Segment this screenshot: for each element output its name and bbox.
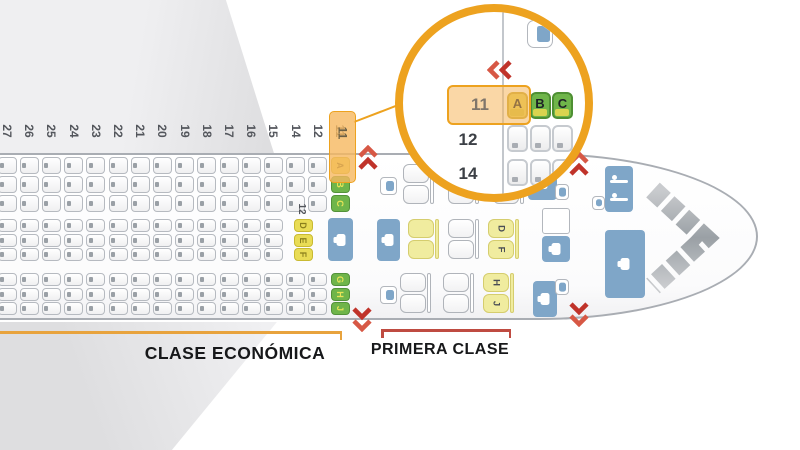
seat-notch xyxy=(178,277,182,282)
economy-seat-24B[interactable] xyxy=(64,176,83,193)
crew-seat-cushion xyxy=(537,26,550,42)
seat-notch xyxy=(557,177,563,182)
economy-seat-26C[interactable] xyxy=(20,195,39,212)
seat-notch xyxy=(44,277,48,282)
crew-seat-cushion xyxy=(559,283,566,292)
economy-seat-15F[interactable] xyxy=(264,248,283,261)
fc-pair-bottom-front-seat2[interactable]: J xyxy=(483,294,509,313)
economy-seat-18F[interactable] xyxy=(197,248,216,261)
economy-seat-17D[interactable] xyxy=(220,219,239,232)
seat-notch xyxy=(0,182,4,187)
economy-seat-22D[interactable] xyxy=(109,219,128,232)
galley-block-1 xyxy=(328,218,353,261)
fc-pair-bottom-2-seat2[interactable] xyxy=(443,294,469,313)
economy-seat-26H[interactable] xyxy=(20,288,39,301)
economy-seat-21F[interactable] xyxy=(131,248,150,261)
economy-seat-24J[interactable] xyxy=(64,302,83,315)
seat-notch xyxy=(200,277,204,282)
economy-seat-14B[interactable] xyxy=(286,176,305,193)
seat-notch xyxy=(178,252,182,257)
fc-pair-top-1-seat2[interactable] xyxy=(403,185,429,204)
economy-seat-20D[interactable] xyxy=(153,219,172,232)
economy-seat-23B[interactable] xyxy=(86,176,105,193)
economy-seat-18H[interactable] xyxy=(197,288,216,301)
seat-notch xyxy=(155,201,159,206)
economy-seat-21H[interactable] xyxy=(131,288,150,301)
economy-seat-20B[interactable] xyxy=(153,176,172,193)
seat-notch xyxy=(67,306,71,311)
economy-seat-11H[interactable]: H xyxy=(331,288,350,301)
economy-seat-21B[interactable] xyxy=(131,176,150,193)
fc-pair-bottom-front-shell xyxy=(510,273,514,313)
seat-notch xyxy=(266,292,270,297)
seat-notch xyxy=(89,306,93,311)
economy-seat-14J[interactable] xyxy=(286,302,305,315)
economy-seat-27G[interactable] xyxy=(0,273,17,286)
economy-row-number-22: 22 xyxy=(107,124,129,138)
economy-seat-12D[interactable]: D xyxy=(294,219,313,232)
economy-seat-26A[interactable] xyxy=(20,157,39,174)
inset-seat-12A[interactable] xyxy=(507,125,528,152)
economy-seat-18E[interactable] xyxy=(197,234,216,247)
economy-seat-16B[interactable] xyxy=(242,176,261,193)
economy-seat-17C[interactable] xyxy=(220,195,239,212)
seat-notch xyxy=(266,306,270,311)
economy-seat-27J[interactable] xyxy=(0,302,17,315)
fc-pair-bottom-1-seat2[interactable] xyxy=(400,294,426,313)
economy-seat-25F[interactable] xyxy=(42,248,61,261)
economy-seat-27C[interactable] xyxy=(0,195,17,212)
galley-icon xyxy=(541,293,550,305)
seat-letter: C xyxy=(554,96,571,111)
economy-seat-25A[interactable] xyxy=(42,157,61,174)
seat-notch xyxy=(155,292,159,297)
seat-notch xyxy=(0,252,4,257)
seat-notch xyxy=(0,238,4,243)
seat-notch xyxy=(111,292,115,297)
economy-seat-19B[interactable] xyxy=(175,176,194,193)
economy-seat-24H[interactable] xyxy=(64,288,83,301)
first-class-label: PRIMERA CLASE xyxy=(360,341,520,359)
economy-seat-23D[interactable] xyxy=(86,219,105,232)
seat-notch xyxy=(266,252,270,257)
galley-icon xyxy=(552,243,561,255)
seat-notch xyxy=(44,163,48,168)
economy-seat-24D[interactable] xyxy=(64,219,83,232)
economy-seat-22H[interactable] xyxy=(109,288,128,301)
seat-notch xyxy=(266,223,270,228)
economy-seat-19F[interactable] xyxy=(175,248,194,261)
economy-seat-21C[interactable] xyxy=(131,195,150,212)
economy-seat-24E[interactable] xyxy=(64,234,83,247)
economy-seat-11G[interactable]: G xyxy=(331,273,350,286)
crew-seat-icon-2 xyxy=(380,286,397,304)
economy-seat-16D[interactable] xyxy=(242,219,261,232)
seat-notch xyxy=(111,277,115,282)
seat-notch xyxy=(289,182,293,187)
seat-notch xyxy=(22,182,26,187)
seat-notch xyxy=(44,238,48,243)
economy-seat-26B[interactable] xyxy=(20,176,39,193)
fc-pair-mid-front-seat1[interactable]: D xyxy=(488,219,514,238)
economy-seat-19D[interactable] xyxy=(175,219,194,232)
economy-seat-27A[interactable] xyxy=(0,157,17,174)
economy-seat-12F[interactable]: F xyxy=(294,248,313,261)
inset-row-number-12: 12 xyxy=(451,128,485,152)
inset-seat-14A[interactable] xyxy=(507,159,528,186)
seat-notch xyxy=(22,306,26,311)
inset-seat-12C[interactable] xyxy=(552,125,573,152)
economy-seat-20J[interactable] xyxy=(153,302,172,315)
economy-seat-23J[interactable] xyxy=(86,302,105,315)
economy-seat-25D[interactable] xyxy=(42,219,61,232)
economy-seat-24C[interactable] xyxy=(64,195,83,212)
seat-notch xyxy=(89,252,93,257)
seat-notch xyxy=(0,292,4,297)
seat-notch xyxy=(22,277,26,282)
economy-seat-15A[interactable] xyxy=(264,157,283,174)
economy-row-number-15: 15 xyxy=(262,124,284,138)
economy-seat-11J[interactable]: J xyxy=(331,302,350,315)
seat-notch xyxy=(155,223,159,228)
seat-notch xyxy=(222,277,226,282)
economy-seat-17H[interactable] xyxy=(220,288,239,301)
economy-seat-23E[interactable] xyxy=(86,234,105,247)
seat-notch xyxy=(200,238,204,243)
economy-seat-25B[interactable] xyxy=(42,176,61,193)
seat-notch xyxy=(111,201,115,206)
economy-seat-20F[interactable] xyxy=(153,248,172,261)
economy-seat-21A[interactable] xyxy=(131,157,150,174)
crew-seat-cushion xyxy=(596,199,602,206)
seat-notch xyxy=(67,292,71,297)
cockpit-icon xyxy=(645,178,730,298)
economy-seat-26D[interactable] xyxy=(20,219,39,232)
economy-seat-20E[interactable] xyxy=(153,234,172,247)
economy-seat-18C[interactable] xyxy=(197,195,216,212)
economy-seat-27F[interactable] xyxy=(0,248,17,261)
economy-seat-19A[interactable] xyxy=(175,157,194,174)
seat-notch xyxy=(0,201,4,206)
seat-letter: B xyxy=(532,96,549,111)
economy-seat-12G[interactable] xyxy=(308,273,327,286)
economy-seat-15E[interactable] xyxy=(264,234,283,247)
seat-notch xyxy=(155,306,159,311)
seat-notch xyxy=(89,223,93,228)
seat-notch xyxy=(222,182,226,187)
economy-seat-26E[interactable] xyxy=(20,234,39,247)
economy-seat-24F[interactable] xyxy=(64,248,83,261)
seat-notch xyxy=(178,223,182,228)
seat-notch xyxy=(311,306,315,311)
inset-seat-14C[interactable] xyxy=(552,159,573,186)
economy-seat-23C[interactable] xyxy=(86,195,105,212)
economy-seat-19J[interactable] xyxy=(175,302,194,315)
economy-seat-26J[interactable] xyxy=(20,302,39,315)
economy-seat-27D[interactable] xyxy=(0,219,17,232)
magnifier-circle: ABC121411 xyxy=(395,4,593,202)
lavatory-block xyxy=(605,166,633,212)
seat-notch xyxy=(266,277,270,282)
exit-arrows-icon-1 xyxy=(357,145,379,171)
economy-seat-15J[interactable] xyxy=(264,302,283,315)
seat-notch xyxy=(133,163,137,168)
inset-seat-11B[interactable]: B xyxy=(530,92,551,119)
economy-seat-24A[interactable] xyxy=(64,157,83,174)
economy-seat-25E[interactable] xyxy=(42,234,61,247)
economy-seat-25G[interactable] xyxy=(42,273,61,286)
seat-notch xyxy=(244,201,248,206)
economy-seat-27E[interactable] xyxy=(0,234,17,247)
exit-arrows-icon-3 xyxy=(351,306,373,332)
first-class-bracket xyxy=(381,329,511,332)
economy-seat-21E[interactable] xyxy=(131,234,150,247)
seat-notch xyxy=(222,223,226,228)
economy-seat-22B[interactable] xyxy=(109,176,128,193)
seat-notch xyxy=(0,277,4,282)
seat-notch xyxy=(44,292,48,297)
fc-pair-bottom-1-seat1[interactable] xyxy=(400,273,426,292)
seat-notch xyxy=(133,182,137,187)
inset-row-number-14: 14 xyxy=(451,162,485,186)
economy-seat-21J[interactable] xyxy=(131,302,150,315)
fc-pair-mid-1-seat2[interactable] xyxy=(408,240,434,259)
economy-seat-15H[interactable] xyxy=(264,288,283,301)
economy-seat-12C[interactable] xyxy=(308,195,327,212)
seat-notch xyxy=(244,182,248,187)
economy-row-number-25: 25 xyxy=(40,124,62,138)
seat-notch xyxy=(178,238,182,243)
seat-notch xyxy=(512,177,518,182)
inset-crew-seat-icon xyxy=(527,20,553,48)
economy-seat-26G[interactable] xyxy=(20,273,39,286)
seat-notch xyxy=(178,306,182,311)
economy-seat-22F[interactable] xyxy=(109,248,128,261)
seat-notch xyxy=(133,306,137,311)
economy-seat-25J[interactable] xyxy=(42,302,61,315)
seat-notch xyxy=(22,238,26,243)
economy-seat-15D[interactable] xyxy=(264,219,283,232)
seat-notch xyxy=(133,292,137,297)
seat-notch xyxy=(244,277,248,282)
economy-seat-16H[interactable] xyxy=(242,288,261,301)
economy-seat-19C[interactable] xyxy=(175,195,194,212)
economy-row-number-18: 18 xyxy=(196,124,218,138)
economy-seat-20G[interactable] xyxy=(153,273,172,286)
economy-seat-11C[interactable]: C xyxy=(331,195,350,212)
economy-row-number-24: 24 xyxy=(63,124,85,138)
economy-seat-19G[interactable] xyxy=(175,273,194,286)
seat-notch xyxy=(22,163,26,168)
seat-notch xyxy=(266,163,270,168)
economy-seat-19E[interactable] xyxy=(175,234,194,247)
galley-icon xyxy=(384,234,393,246)
lavatory-icon xyxy=(610,193,628,201)
seat-notch xyxy=(222,201,226,206)
seat-notch xyxy=(200,292,204,297)
seat-notch xyxy=(44,306,48,311)
seat-notch xyxy=(67,277,71,282)
fc-pair-mid-2-seat1[interactable] xyxy=(448,219,474,238)
economy-seat-12J[interactable] xyxy=(308,302,327,315)
seat-notch xyxy=(133,252,137,257)
seat-notch xyxy=(244,223,248,228)
seat-notch xyxy=(222,292,226,297)
row-11-highlight-number: 11 xyxy=(328,121,358,146)
seat-notch xyxy=(44,201,48,206)
economy-seat-12B[interactable] xyxy=(308,176,327,193)
seat-notch xyxy=(311,292,315,297)
economy-seat-22G[interactable] xyxy=(109,273,128,286)
seat-notch xyxy=(200,182,204,187)
economy-seat-20A[interactable] xyxy=(153,157,172,174)
seat-notch xyxy=(178,292,182,297)
lavatory-icon xyxy=(610,175,628,183)
economy-seat-18J[interactable] xyxy=(197,302,216,315)
seat-notch xyxy=(0,223,4,228)
economy-seat-23F[interactable] xyxy=(86,248,105,261)
economy-seat-17F[interactable] xyxy=(220,248,239,261)
economy-seat-21D[interactable] xyxy=(131,219,150,232)
economy-seat-14G[interactable] xyxy=(286,273,305,286)
inset-row-11-highlight-box: 11 xyxy=(447,85,531,125)
economy-seat-24G[interactable] xyxy=(64,273,83,286)
first-class-bracket-tick-left xyxy=(381,329,384,338)
fc-pair-mid-2-seat2[interactable] xyxy=(448,240,474,259)
seat-notch xyxy=(244,306,248,311)
economy-seat-27H[interactable] xyxy=(0,288,17,301)
seat-notch xyxy=(89,238,93,243)
economy-seat-16E[interactable] xyxy=(242,234,261,247)
economy-bracket xyxy=(0,331,342,334)
seat-notch xyxy=(222,252,226,257)
seat-notch xyxy=(22,292,26,297)
economy-seat-14H[interactable] xyxy=(286,288,305,301)
inset-seat-11C[interactable]: C xyxy=(552,92,573,119)
seat-notch xyxy=(266,201,270,206)
seat-notch xyxy=(67,182,71,187)
economy-seat-15G[interactable] xyxy=(264,273,283,286)
inset-seat-14B[interactable] xyxy=(530,159,551,186)
economy-seat-25H[interactable] xyxy=(42,288,61,301)
seat-notch xyxy=(289,277,293,282)
economy-seat-18D[interactable] xyxy=(197,219,216,232)
fc-pair-mid-front-shell xyxy=(515,219,519,259)
seat-notch xyxy=(111,223,115,228)
seat-notch xyxy=(266,238,270,243)
seat-notch xyxy=(200,223,204,228)
economy-seat-12H[interactable] xyxy=(308,288,327,301)
seat-notch xyxy=(67,223,71,228)
economy-seat-12E[interactable]: E xyxy=(294,234,313,247)
economy-seat-21G[interactable] xyxy=(131,273,150,286)
fc-pair-mid-front-seat2[interactable]: F xyxy=(488,240,514,259)
galley-block-tall xyxy=(605,230,645,298)
economy-seat-16G[interactable] xyxy=(242,273,261,286)
economy-seat-26F[interactable] xyxy=(20,248,39,261)
economy-seat-17J[interactable] xyxy=(220,302,239,315)
economy-seat-27B[interactable] xyxy=(0,176,17,193)
seat-notch xyxy=(89,292,93,297)
seat-letter: C xyxy=(333,195,348,212)
economy-seat-17E[interactable] xyxy=(220,234,239,247)
seat-letter: J xyxy=(335,300,346,317)
economy-seat-16J[interactable] xyxy=(242,302,261,315)
economy-seat-15B[interactable] xyxy=(264,176,283,193)
economy-row-number-27: 27 xyxy=(0,124,18,138)
galley-block-2 xyxy=(377,219,400,261)
economy-seat-19H[interactable] xyxy=(175,288,194,301)
fc-pair-mid-2-shell xyxy=(475,219,479,259)
economy-seat-23A[interactable] xyxy=(86,157,105,174)
economy-seat-17B[interactable] xyxy=(220,176,239,193)
seat-notch xyxy=(111,238,115,243)
economy-seat-18B[interactable] xyxy=(197,176,216,193)
economy-row-number-21: 21 xyxy=(129,124,151,138)
economy-row-number-17: 17 xyxy=(218,124,240,138)
economy-seat-14A[interactable] xyxy=(286,157,305,174)
economy-seat-22A[interactable] xyxy=(109,157,128,174)
economy-seat-18A[interactable] xyxy=(197,157,216,174)
economy-seat-17A[interactable] xyxy=(220,157,239,174)
seat-notch xyxy=(200,163,204,168)
economy-seat-15C[interactable] xyxy=(264,195,283,212)
economy-seat-17G[interactable] xyxy=(220,273,239,286)
economy-seat-18G[interactable] xyxy=(197,273,216,286)
seat-notch xyxy=(222,238,226,243)
seat-notch xyxy=(89,163,93,168)
economy-class-label: CLASE ECONÓMICA xyxy=(135,343,335,364)
economy-seat-25C[interactable] xyxy=(42,195,61,212)
economy-seat-23H[interactable] xyxy=(86,288,105,301)
economy-row-number-20: 20 xyxy=(151,124,173,138)
seat-notch xyxy=(200,201,204,206)
economy-seat-12A[interactable] xyxy=(308,157,327,174)
seat-notch xyxy=(244,163,248,168)
seat-notch xyxy=(289,201,293,206)
economy-seat-20H[interactable] xyxy=(153,288,172,301)
fc-pair-bottom-front-seat1[interactable]: H xyxy=(483,273,509,292)
seat-letter: F xyxy=(298,246,309,263)
economy-row-number-23: 23 xyxy=(85,124,107,138)
galley-icon xyxy=(621,258,630,270)
inset-seat-12B[interactable] xyxy=(530,125,551,152)
inset-exit-arrows-icon xyxy=(487,59,513,81)
seat-notch xyxy=(155,182,159,187)
economy-seat-16F[interactable] xyxy=(242,248,261,261)
economy-seat-22J[interactable] xyxy=(109,302,128,315)
seat-notch xyxy=(133,277,137,282)
fc-pair-bottom-2-seat1[interactable] xyxy=(443,273,469,292)
fc-pair-mid-1-seat1[interactable] xyxy=(408,219,434,238)
economy-seat-23G[interactable] xyxy=(86,273,105,286)
seat-notch xyxy=(111,163,115,168)
economy-seat-16A[interactable] xyxy=(242,157,261,174)
seat-notch xyxy=(89,182,93,187)
economy-seat-22E[interactable] xyxy=(109,234,128,247)
seat-notch xyxy=(222,306,226,311)
economy-seat-22C[interactable] xyxy=(109,195,128,212)
seat-notch xyxy=(44,223,48,228)
seat-notch xyxy=(111,306,115,311)
seat-notch xyxy=(535,143,541,148)
seat-notch xyxy=(289,163,293,168)
seat-notch xyxy=(244,238,248,243)
economy-seat-16C[interactable] xyxy=(242,195,261,212)
seat-notch xyxy=(266,182,270,187)
seat-notch xyxy=(155,277,159,282)
economy-seat-20C[interactable] xyxy=(153,195,172,212)
